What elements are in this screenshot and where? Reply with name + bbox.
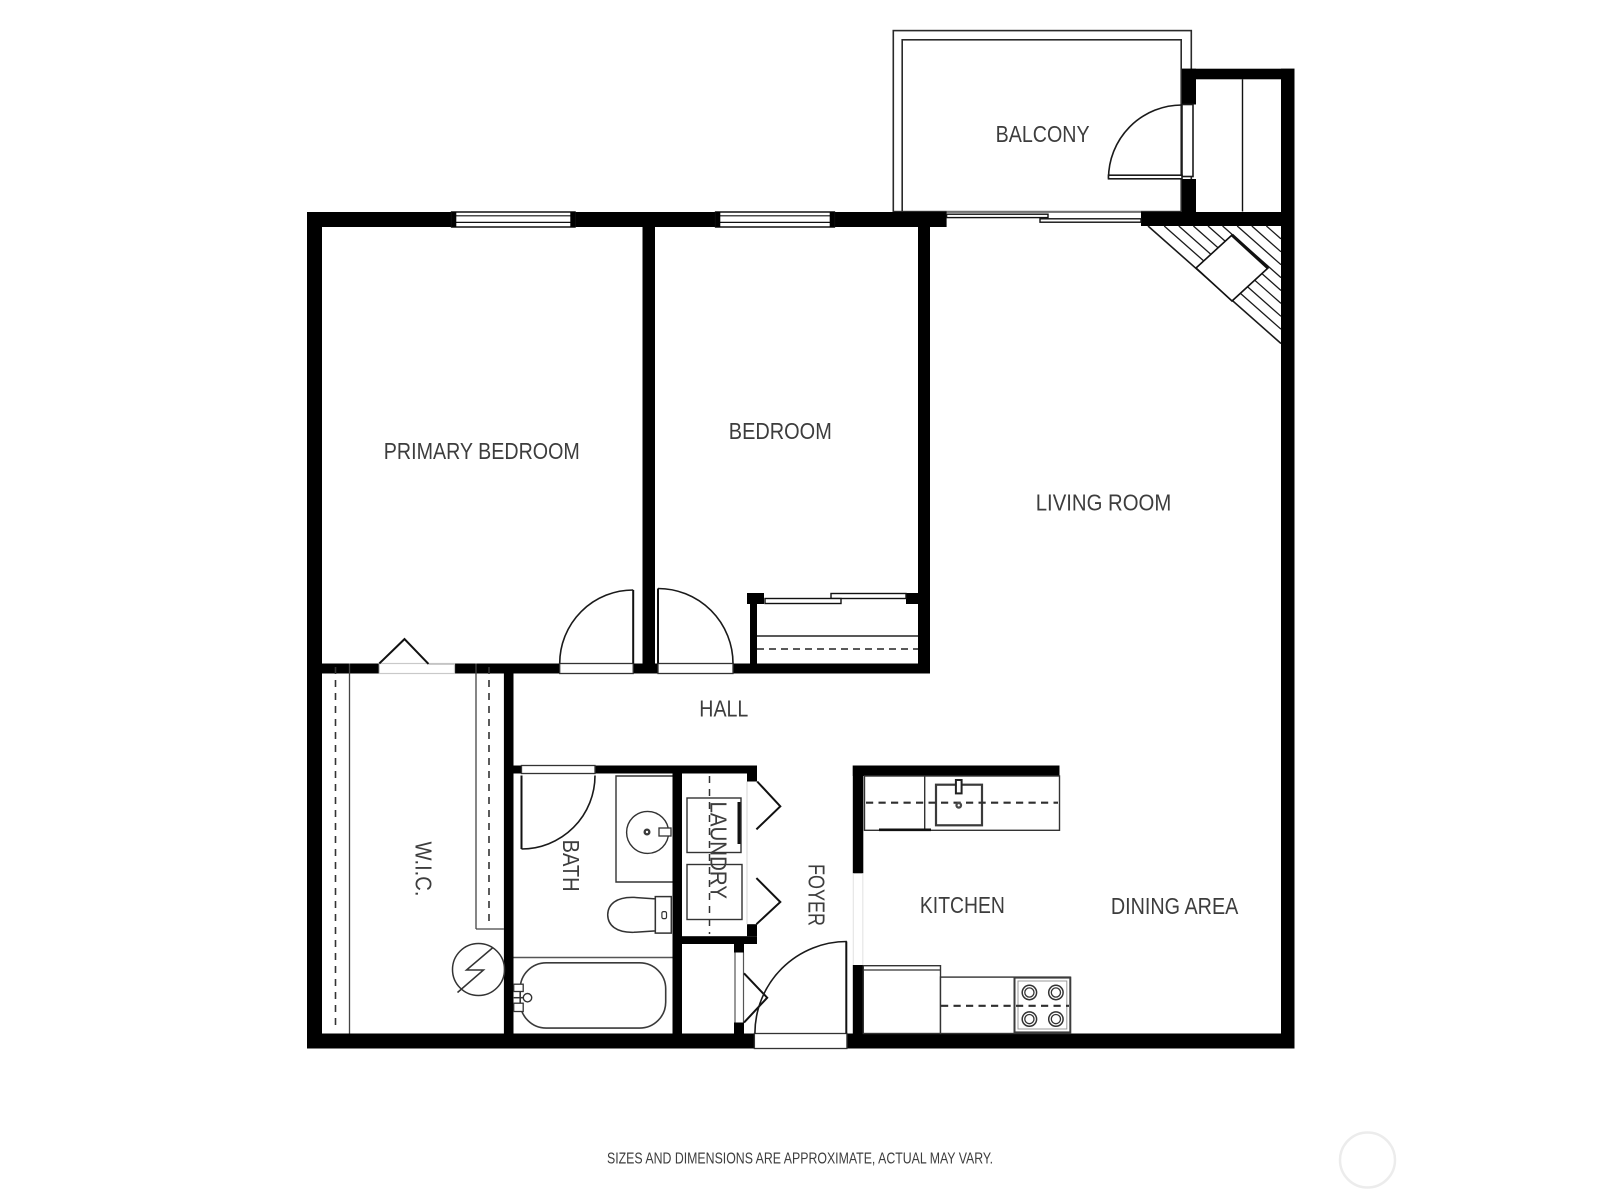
svg-text:PRIMARY BEDROOM: PRIMARY BEDROOM	[384, 438, 580, 464]
svg-text:LIVING ROOM: LIVING ROOM	[1036, 490, 1172, 516]
svg-text:FOYER: FOYER	[804, 864, 830, 926]
svg-text:BATH: BATH	[558, 840, 584, 892]
svg-text:LAUNDRY: LAUNDRY	[706, 801, 732, 899]
svg-text:DINING AREA: DINING AREA	[1111, 893, 1239, 919]
svg-text:SIZES AND DIMENSIONS ARE APPRO: SIZES AND DIMENSIONS ARE APPROXIMATE, AC…	[607, 1151, 993, 1168]
svg-text:HALL: HALL	[699, 696, 748, 722]
svg-text:BALCONY: BALCONY	[996, 121, 1090, 147]
svg-text:BEDROOM: BEDROOM	[729, 418, 832, 444]
svg-text:KITCHEN: KITCHEN	[920, 892, 1005, 918]
svg-text:W.I.C.: W.I.C.	[411, 842, 437, 897]
